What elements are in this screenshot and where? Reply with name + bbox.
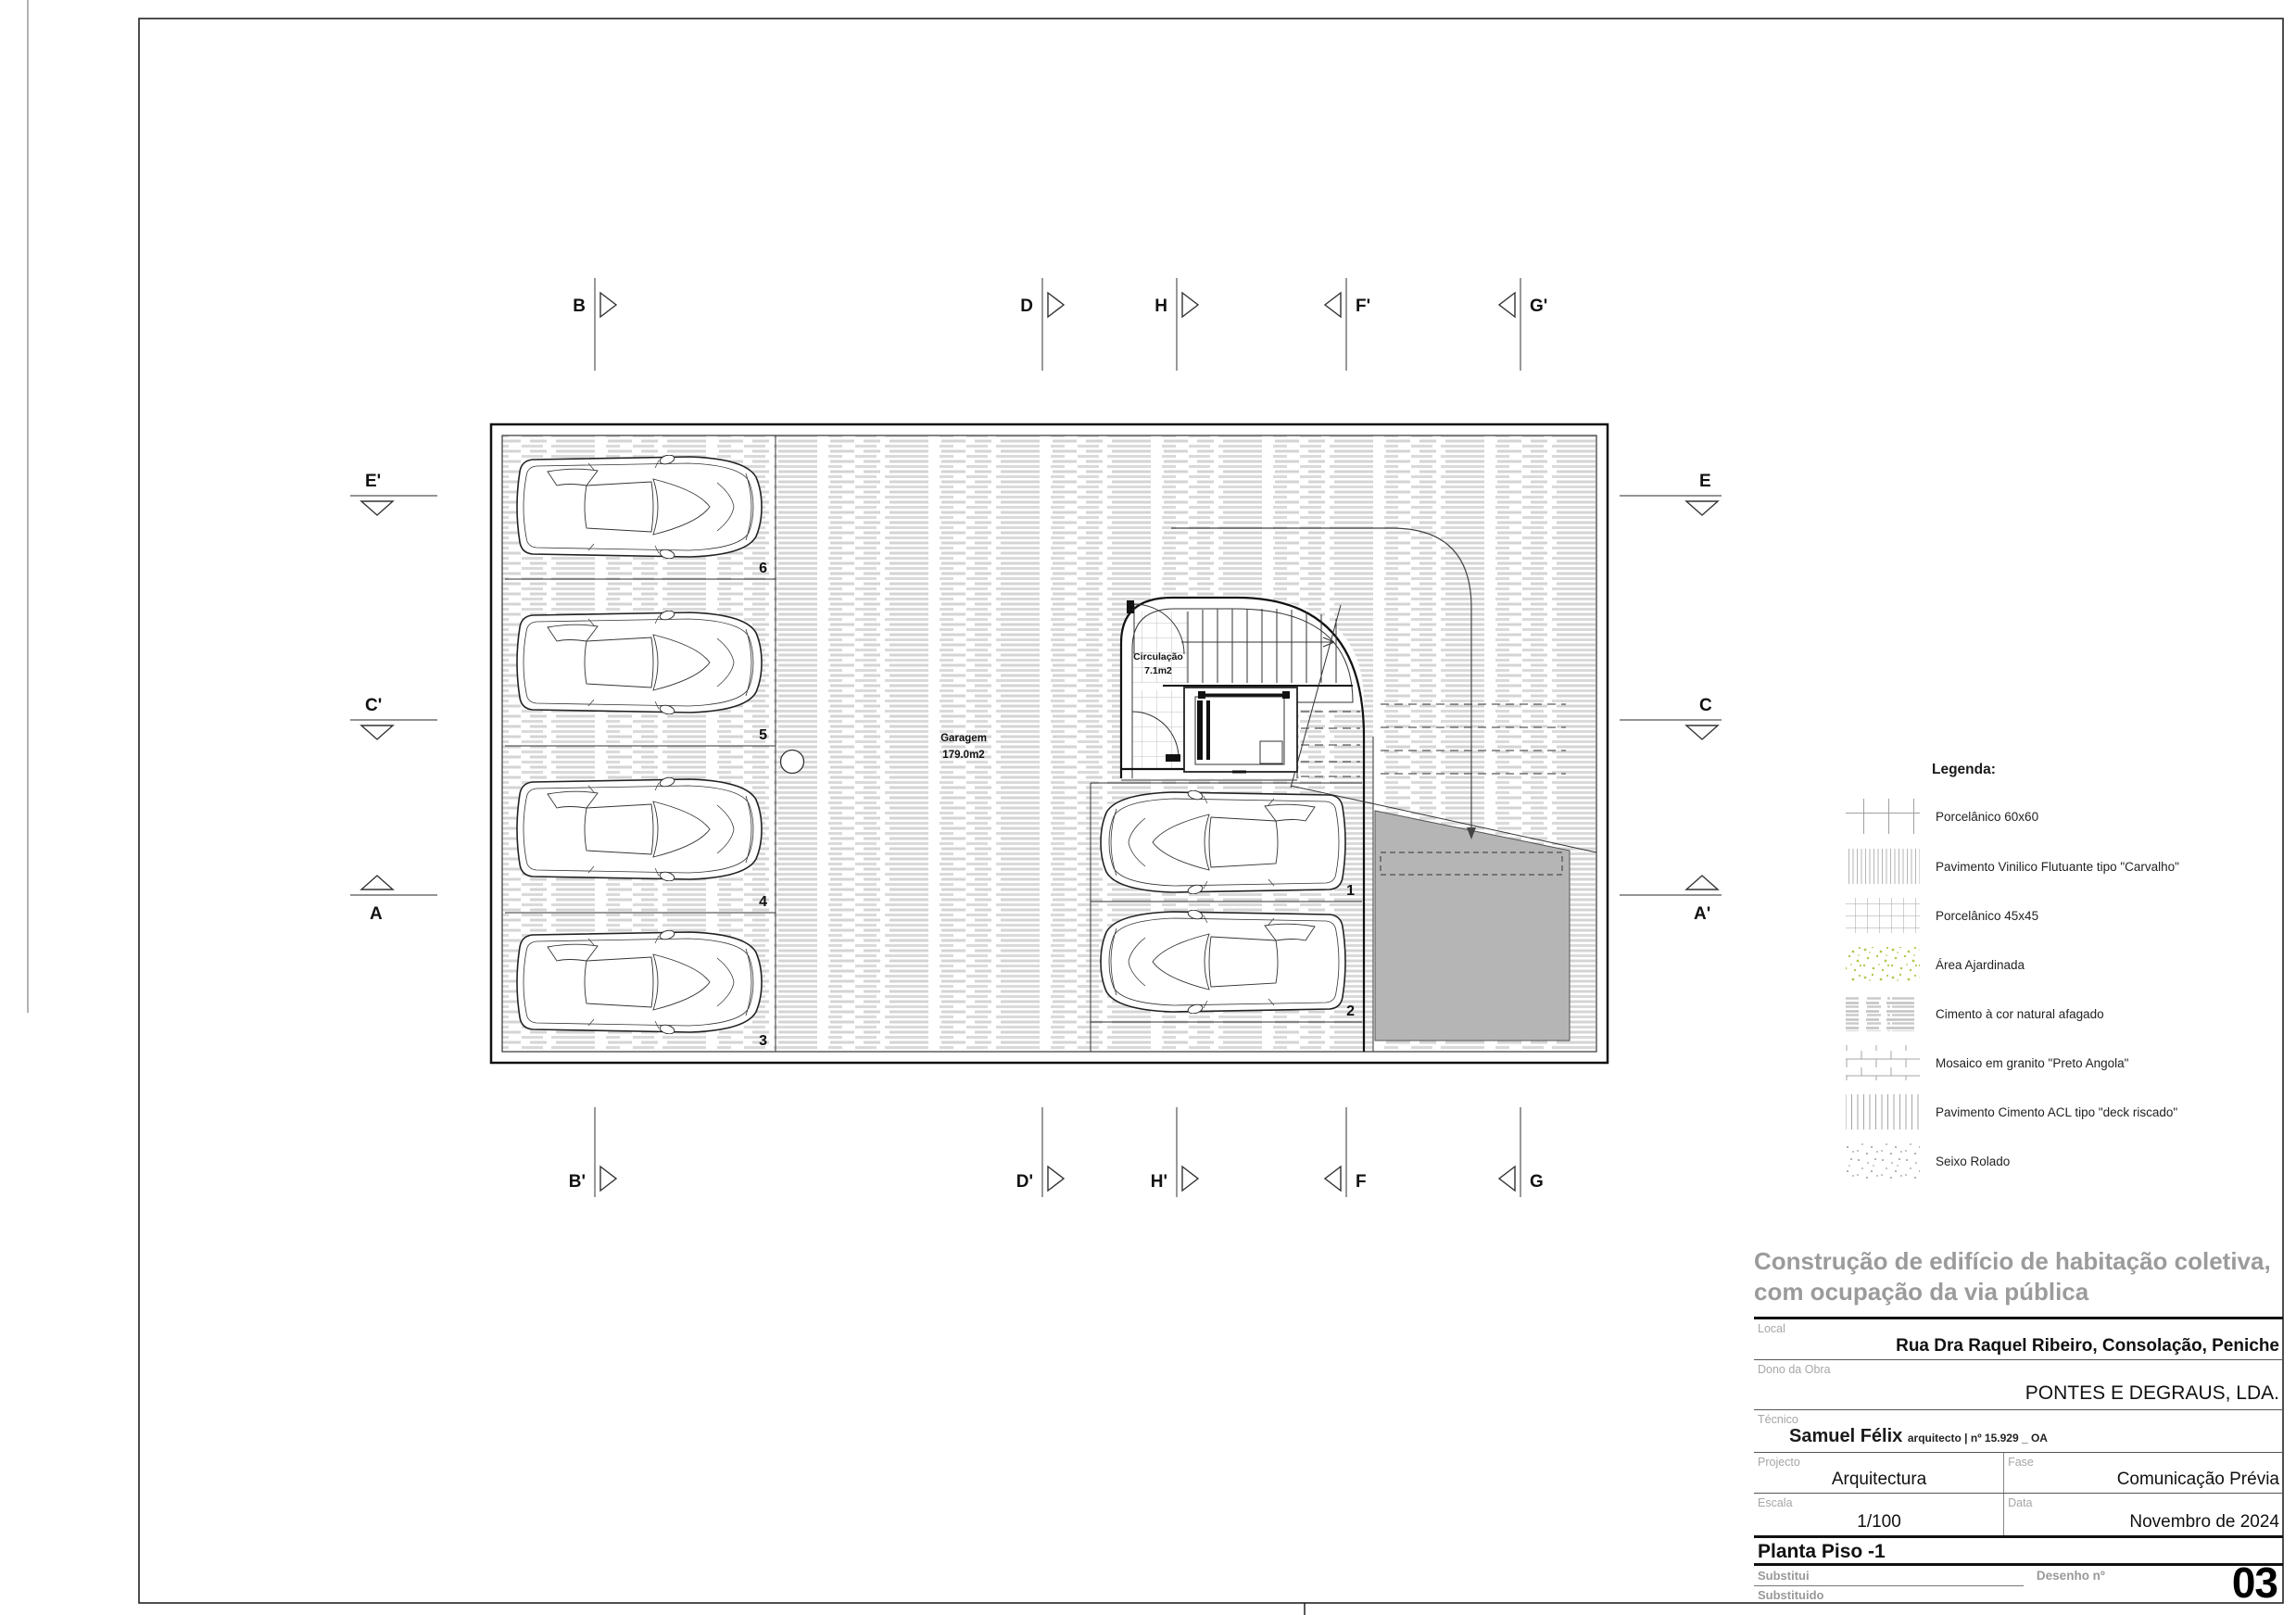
section-arrow-right-icon: [600, 293, 616, 317]
legend-swatch-ajardinada: [1846, 947, 1920, 982]
section-arrow-left-icon: [1325, 1167, 1341, 1191]
section-arrow-down-icon: [361, 501, 393, 515]
section-arrow-left-icon: [1325, 293, 1341, 317]
section-marker-label: C': [365, 696, 382, 715]
legend-swatches: [1846, 799, 1920, 1179]
tecnico-value: Samuel Félix arquitecto | nº 15.929 _ OA: [1789, 1426, 2048, 1447]
car-2: [1101, 909, 1345, 1016]
field-escala-data: Escala 1/100 Data Novembro de 2024: [1754, 1493, 2283, 1535]
substitui-label: Substitui: [1758, 1569, 1810, 1583]
legend-item-label: Mosaico em granito "Preto Angola": [1936, 1056, 2278, 1070]
drawing-sheet: 6 5 4 3 1 2: [0, 0, 2296, 1615]
door-jamb: [1127, 600, 1134, 613]
desenho-number: 03: [2232, 1563, 2277, 1603]
substitui-divider: [1754, 1585, 2024, 1586]
field-projecto-fase: Projecto Arquitectura Fase Comunicação P…: [1754, 1452, 2283, 1493]
local-label: Local: [1758, 1322, 1785, 1335]
legend-swatch-deck: [1846, 1094, 1920, 1129]
legend-item-label: Porcelânico 60x60: [1936, 810, 2278, 824]
cell-escala: Escala 1/100: [1754, 1494, 2004, 1535]
data-label: Data: [2008, 1496, 2032, 1509]
circulacao-area: 7.1m2: [1144, 665, 1172, 676]
legend-swatch-vinilico: [1846, 849, 1920, 884]
section-marker-label: G: [1530, 1172, 1544, 1192]
section-marker-label: A: [370, 904, 383, 924]
fase-value: Comunicação Prévia: [2117, 1470, 2279, 1490]
project-title: Construção de edifício de habitação cole…: [1754, 1246, 2283, 1317]
fase-label: Fase: [2008, 1456, 2034, 1469]
field-local: Local Rua Dra Raquel Ribeiro, Consolação…: [1754, 1317, 2283, 1359]
section-arrow-up-icon: [361, 876, 393, 890]
field-drawing-title: Planta Piso -1: [1754, 1535, 2283, 1563]
section-marker-label: F: [1356, 1172, 1367, 1192]
tecnico-suffix: arquitecto | nº 15.929 _ OA: [1908, 1432, 2048, 1445]
escala-value: 1/100: [1754, 1512, 2004, 1533]
section-arrow-down-icon: [1686, 725, 1718, 739]
projecto-value: Arquitectura: [1754, 1470, 2004, 1490]
section-marker-label: D: [1020, 297, 1033, 316]
dono-value: PONTES E DEGRAUS, LDA.: [2025, 1382, 2279, 1405]
local-value: Rua Dra Raquel Ribeiro, Consolação, Peni…: [1896, 1336, 2279, 1356]
cell-substitui: Substitui Substituido: [1754, 1566, 2029, 1603]
project-title-line2: com ocupação da via pública: [1754, 1277, 2283, 1307]
stall-number: 5: [759, 727, 767, 743]
garagem-label: Garagem: [940, 733, 987, 744]
circulacao-label: Circulação: [1133, 651, 1183, 662]
stall-number: 3: [759, 1033, 767, 1049]
legend-swatch-seixo: [1846, 1143, 1920, 1179]
car-4: [517, 776, 762, 883]
section-marker-label: B: [573, 297, 586, 316]
section-arrow-right-icon: [1182, 293, 1198, 317]
car-3: [517, 929, 762, 1036]
cell-fase: Fase Comunicação Prévia: [2003, 1453, 2283, 1493]
data-value: Novembro de 2024: [2129, 1512, 2279, 1533]
cell-desenho: Desenho nº 03: [2029, 1566, 2283, 1603]
section-marker-label: D': [1016, 1172, 1033, 1192]
elevator: [1184, 688, 1297, 772]
drawing-title: Planta Piso -1: [1758, 1541, 1886, 1563]
title-block: Construção de edifício de habitação cole…: [1754, 1246, 2283, 1603]
section-marker-label: E: [1699, 472, 1711, 491]
car-6: [517, 454, 762, 561]
legend-item-label: Pavimento Vinilico Flutuante tipo "Carva…: [1936, 860, 2278, 874]
legend-item-label: Seixo Rolado: [1936, 1154, 2278, 1168]
column: [781, 751, 804, 774]
section-marker-label: C: [1699, 696, 1712, 715]
door-jamb: [1166, 754, 1180, 762]
legend-swatch-porcelanico-60: [1846, 799, 1920, 834]
escala-label: Escala: [1758, 1496, 1793, 1509]
section-marker-label: H': [1151, 1172, 1167, 1192]
section-arrow-down-icon: [361, 725, 393, 739]
field-dono-da-obra: Dono da Obra PONTES E DEGRAUS, LDA.: [1754, 1359, 2283, 1409]
section-marker-label: G': [1530, 297, 1547, 316]
field-tecnico: Técnico Samuel Félix arquitecto | nº 15.…: [1754, 1409, 2283, 1452]
field-substitui: Substitui Substituido Desenho nº 03: [1754, 1563, 2283, 1603]
stall-number: 4: [759, 894, 767, 910]
legend-item-label: Porcelânico 45x45: [1936, 909, 2278, 923]
tecnico-label: Técnico: [1758, 1413, 1798, 1426]
section-arrow-left-icon: [1499, 1167, 1515, 1191]
garagem-area: 179.0m2: [942, 750, 984, 761]
cell-projecto: Projecto Arquitectura: [1754, 1453, 2004, 1493]
section-arrow-right-icon: [600, 1167, 616, 1191]
section-marker-label: A': [1694, 904, 1710, 924]
stall-number: 6: [759, 561, 767, 576]
section-arrow-right-icon: [1182, 1167, 1198, 1191]
legend-item-label: Área Ajardinada: [1936, 958, 2278, 972]
section-marker-label: B': [569, 1172, 586, 1192]
project-title-line1: Construção de edifício de habitação cole…: [1754, 1246, 2283, 1277]
substituido-label: Substituido: [1758, 1588, 1824, 1602]
car-1: [1101, 789, 1345, 896]
section-arrow-down-icon: [1686, 501, 1718, 515]
section-marker-label: E': [365, 472, 381, 491]
legend-swatch-porcelanico-45: [1846, 898, 1920, 933]
tecnico-name: Samuel Félix: [1789, 1426, 1902, 1446]
legend-title: Legenda:: [1932, 762, 1996, 778]
section-marker-label: F': [1356, 297, 1370, 316]
stall-number: 1: [1346, 883, 1355, 899]
projecto-label: Projecto: [1758, 1456, 1800, 1469]
desenho-label: Desenho nº: [2037, 1569, 2105, 1583]
legend-item-label: Cimento à cor natural afagado: [1936, 1007, 2278, 1021]
section-arrow-left-icon: [1499, 293, 1515, 317]
legend-swatch-cimento: [1846, 996, 1920, 1031]
section-marker-label: H: [1154, 297, 1167, 316]
section-arrow-right-icon: [1048, 1167, 1064, 1191]
car-5: [517, 610, 762, 716]
section-arrow-right-icon: [1048, 293, 1064, 317]
cell-data: Data Novembro de 2024: [2003, 1494, 2283, 1535]
legend-swatch-mosaico: [1846, 1045, 1920, 1080]
section-arrow-up-icon: [1686, 876, 1718, 890]
garage-plan: 6 5 4 3 1 2: [491, 424, 1608, 1063]
stall-number: 2: [1346, 1003, 1355, 1019]
legend-item-label: Pavimento Cimento ACL tipo "deck riscado…: [1936, 1105, 2278, 1119]
dono-label: Dono da Obra: [1758, 1363, 1831, 1376]
